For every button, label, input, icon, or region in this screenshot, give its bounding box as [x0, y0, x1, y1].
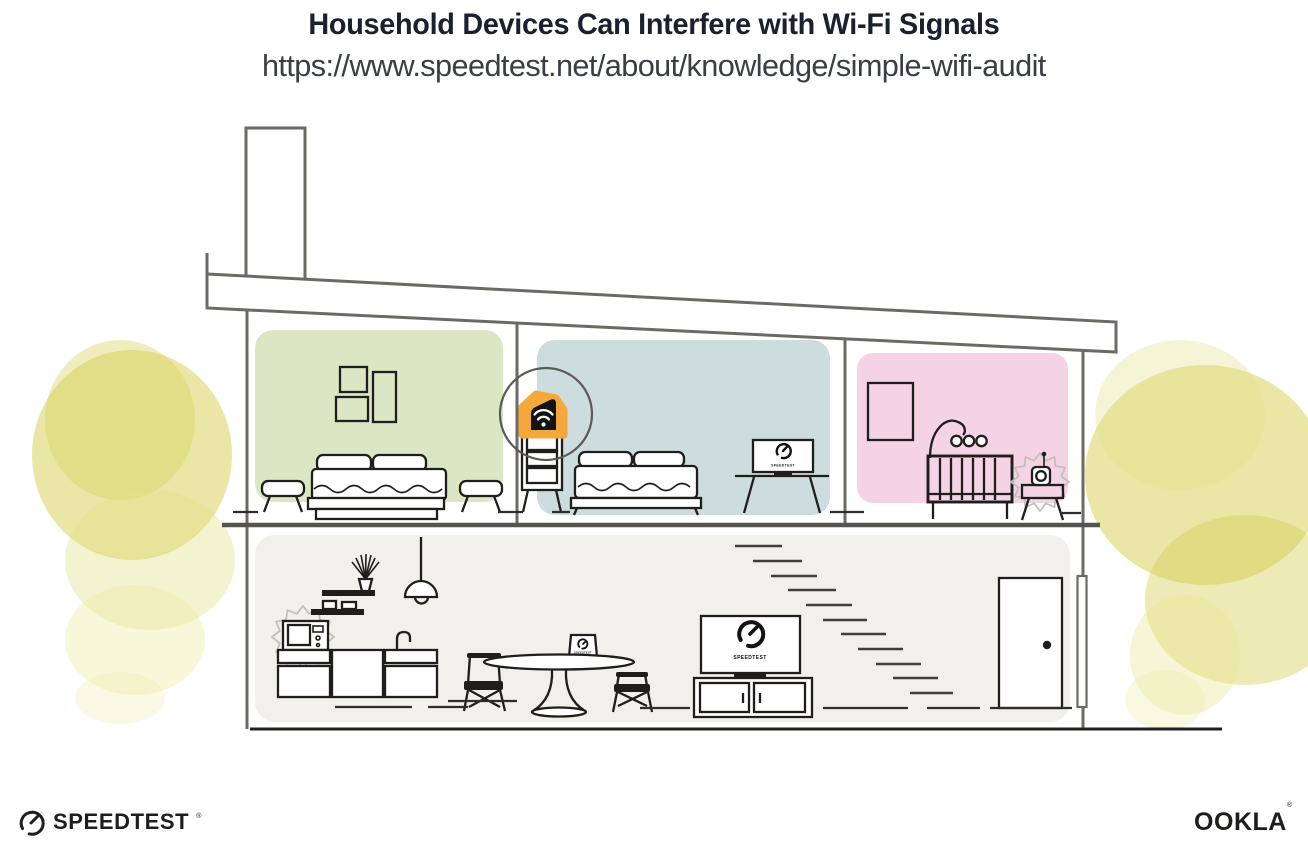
ookla-wordmark: OOKLA — [1194, 808, 1287, 836]
downspout — [1078, 576, 1087, 707]
door-knob — [1043, 641, 1051, 649]
bed-1 — [308, 455, 446, 519]
bedroom-monitor-label: SPEEDTEST — [771, 464, 795, 468]
speedtest-trademark: ® — [196, 813, 201, 820]
mobile-ball — [964, 436, 974, 446]
tv-screen-label: SPEEDTEST — [733, 655, 766, 661]
cup — [323, 601, 336, 609]
foliage-right — [1085, 340, 1308, 730]
ookla-trademark: ® — [1287, 802, 1292, 809]
antenna-tip — [1042, 452, 1047, 457]
media-console — [694, 678, 812, 717]
foliage-left — [32, 340, 235, 724]
house-illustration: SPEEDTEST — [0, 0, 1308, 861]
mobile-ball — [951, 436, 961, 446]
microwave — [283, 621, 328, 650]
ookla-logo: OOKLA® — [1194, 808, 1292, 837]
tv-stand — [734, 673, 766, 677]
front-door — [999, 578, 1062, 708]
stool — [262, 481, 304, 512]
mobile-ball — [976, 436, 986, 446]
speedtest-wordmark: SPEEDTEST — [53, 809, 189, 835]
chimney — [246, 128, 305, 281]
speedtest-logo: SPEEDTEST ® — [16, 807, 201, 837]
speedtest-gauge-icon — [16, 807, 46, 837]
bed-2 — [571, 452, 701, 515]
cup — [342, 602, 356, 609]
footer: SPEEDTEST ® OOKLA® — [0, 807, 1308, 837]
living-room-tv: SPEEDTEST — [694, 616, 812, 717]
stool — [460, 481, 502, 512]
